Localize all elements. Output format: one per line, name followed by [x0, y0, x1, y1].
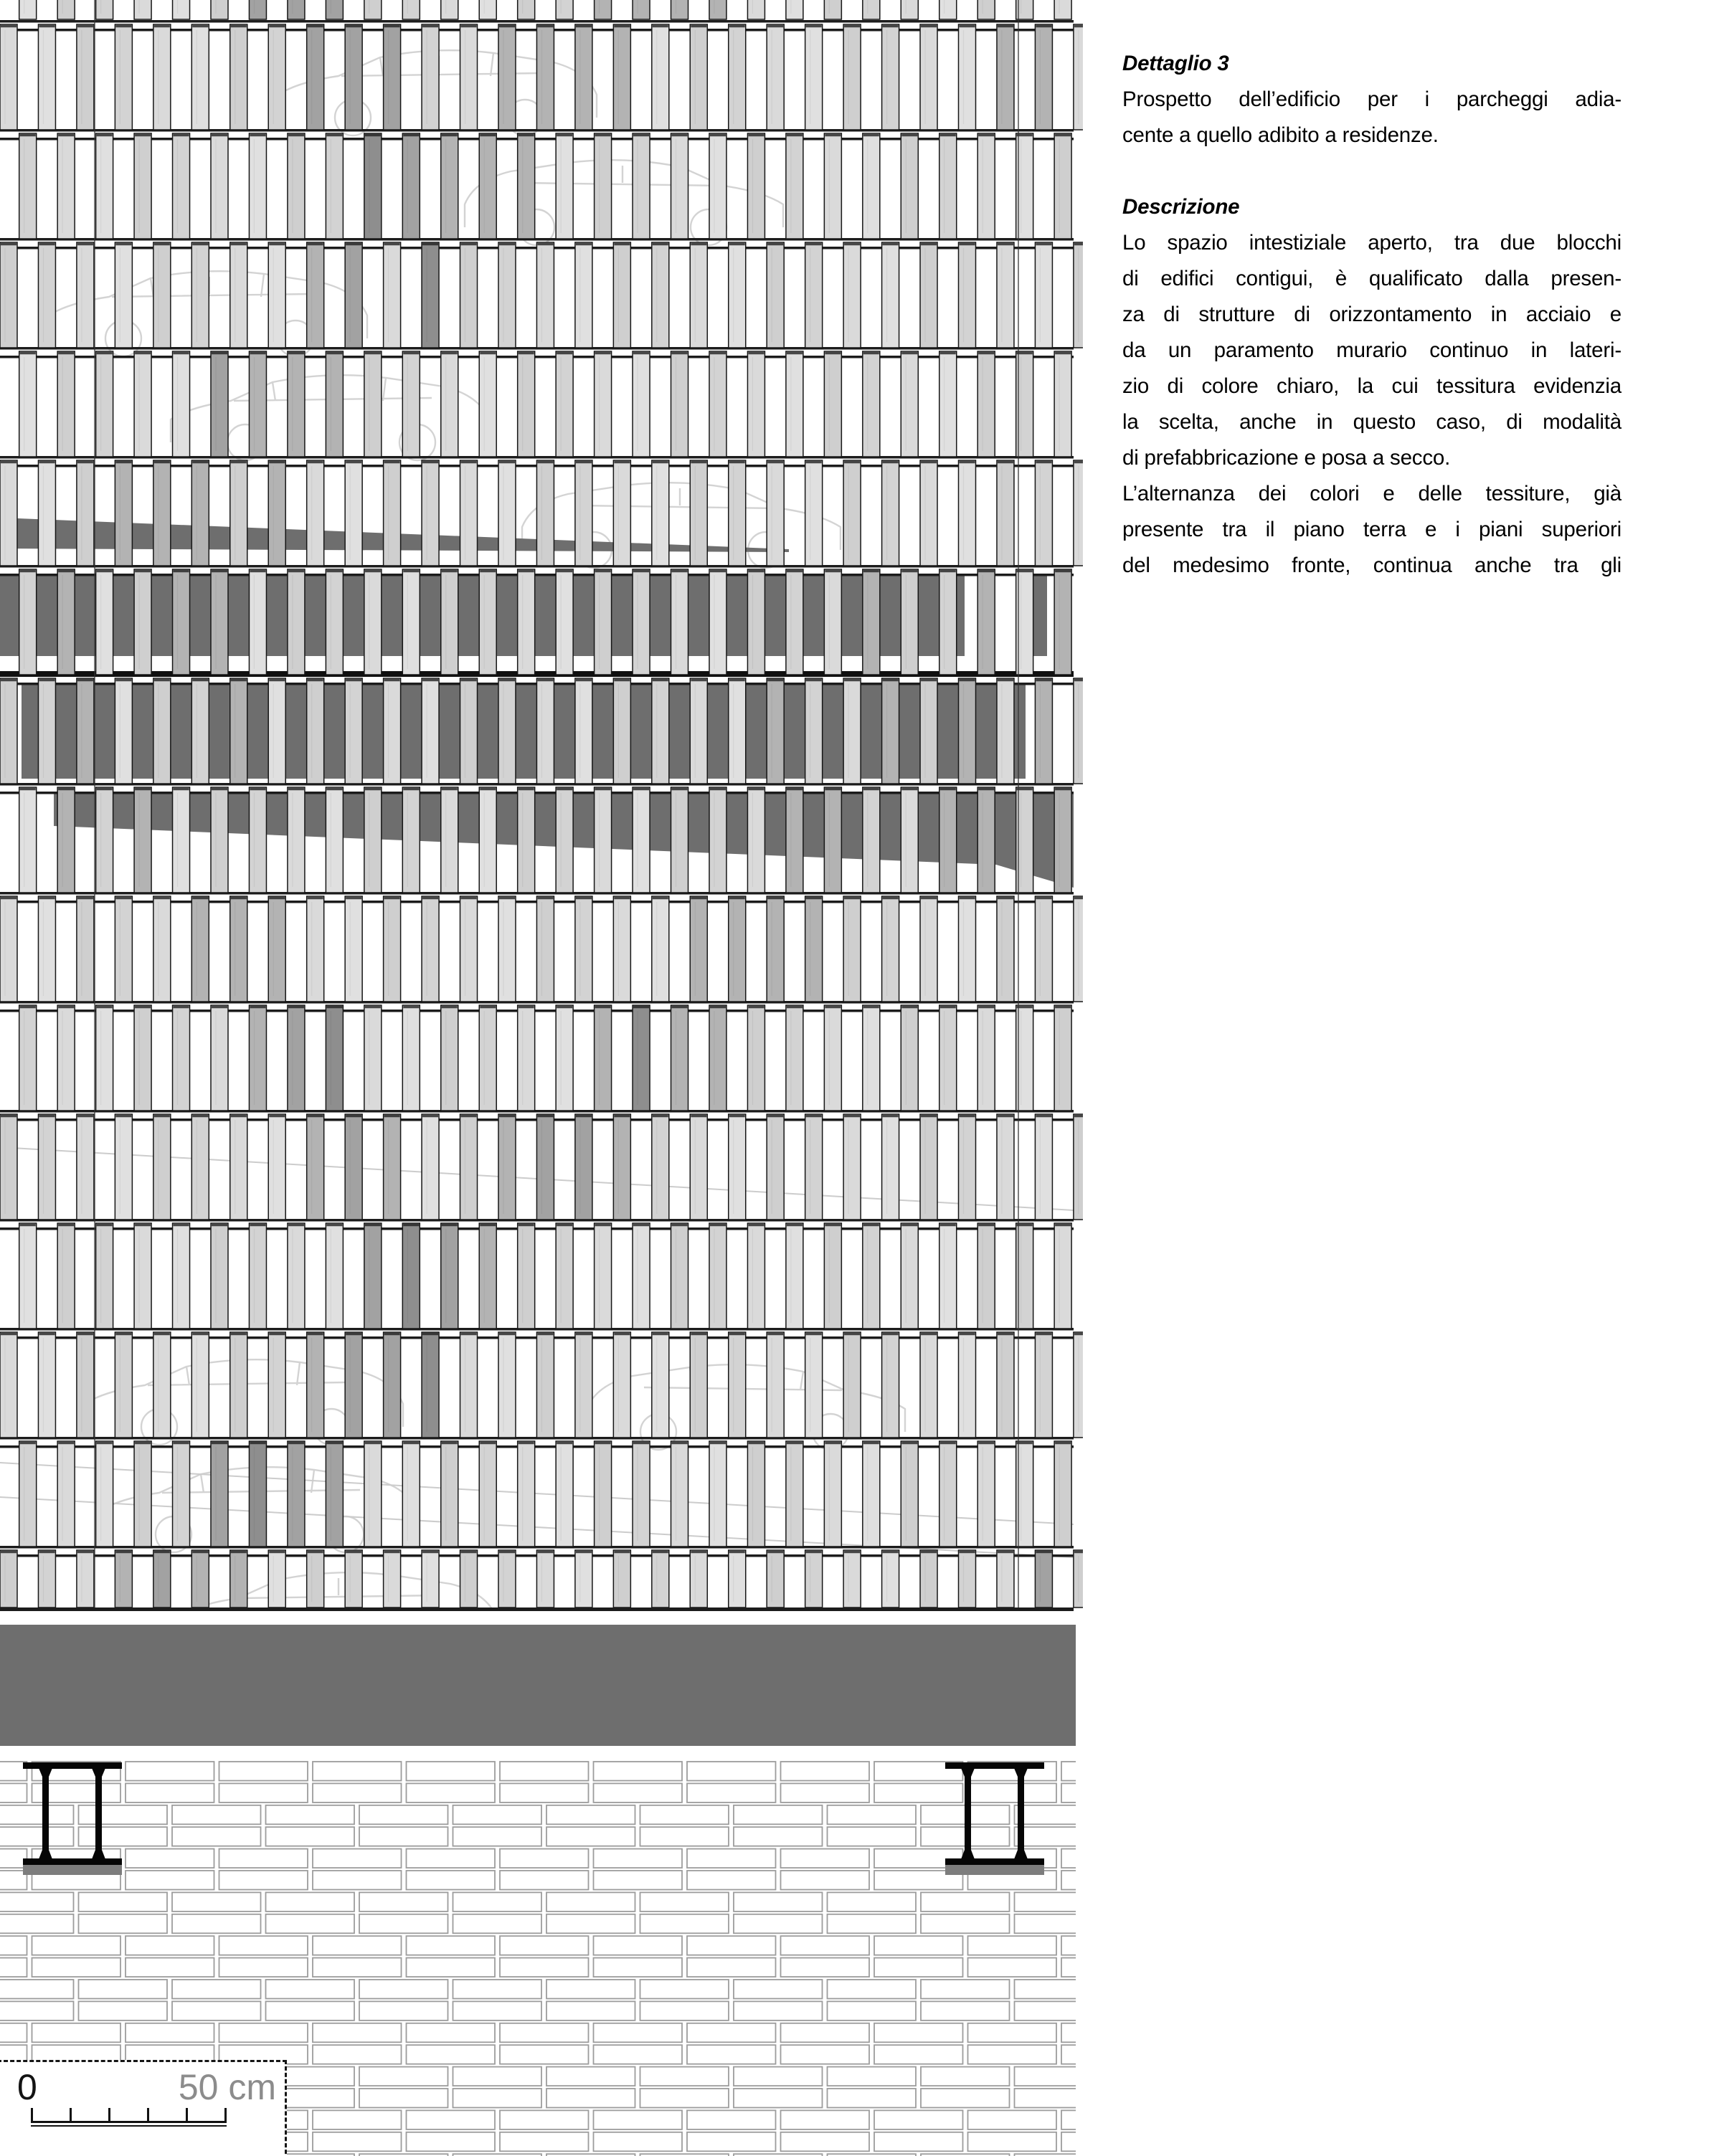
book-page: Dettaglio 3Prospetto dell’edificio per i… — [0, 0, 1709, 2156]
ruler-tick — [70, 2108, 72, 2123]
caption-line: presente tra il piano terra e i piani su… — [1122, 512, 1622, 548]
caption-line: za di strutture di orizzontamento in acc… — [1122, 297, 1622, 333]
caption-line: Lo spazio intestiziale aperto, tra due b… — [1122, 225, 1622, 261]
caption-line: di edifici contigui, è qualificato dalla… — [1122, 261, 1622, 297]
caption-blank-line — [1122, 153, 1622, 189]
scale-zero-label: 0 — [17, 2069, 37, 2105]
scale-ruler — [31, 2108, 227, 2127]
caption-line: cente a quello adibito a residenze. — [1122, 118, 1622, 153]
caption-line: L’alternanza dei colori e delle tessitur… — [1122, 476, 1622, 512]
ruler-tick — [108, 2108, 110, 2123]
facade-elevation-svg — [0, 0, 1083, 2156]
ruler-tick — [186, 2108, 188, 2123]
ruler-tick — [224, 2108, 227, 2123]
caption-line: di prefabbricazione e posa a secco. — [1122, 440, 1622, 476]
caption-line: da un paramento murario continuo in late… — [1122, 333, 1622, 369]
facade-elevation-drawing — [0, 0, 1083, 2156]
ruler-line-2 — [31, 2125, 227, 2127]
caption-line: la scelta, anche in questo caso, di moda… — [1122, 404, 1622, 440]
caption-line: del medesimo fronte, continua anche tra … — [1122, 548, 1622, 584]
ruler-tick — [31, 2108, 33, 2123]
ruler-line — [31, 2121, 227, 2123]
scale-bar: 0 50 cm — [0, 2060, 287, 2156]
caption-heading: Descrizione — [1122, 189, 1622, 225]
caption-line: zio di colore chiaro, la cui tessitura e… — [1122, 369, 1622, 404]
scale-length-label: 50 cm — [179, 2069, 276, 2105]
ruler-tick — [147, 2108, 149, 2123]
caption-line: Prospetto dell’edificio per i parcheggi … — [1122, 82, 1622, 118]
caption-heading: Dettaglio 3 — [1122, 46, 1622, 82]
caption-column: Dettaglio 3Prospetto dell’edificio per i… — [1122, 46, 1622, 584]
